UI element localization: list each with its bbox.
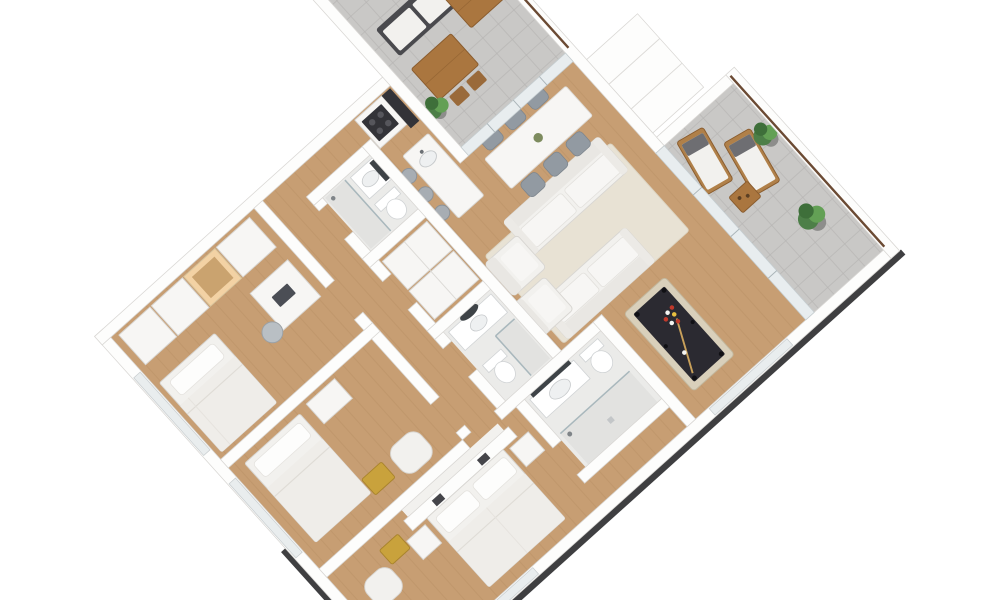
floor-plan-page [0, 0, 1000, 600]
floor-plan-svg [0, 0, 1000, 600]
